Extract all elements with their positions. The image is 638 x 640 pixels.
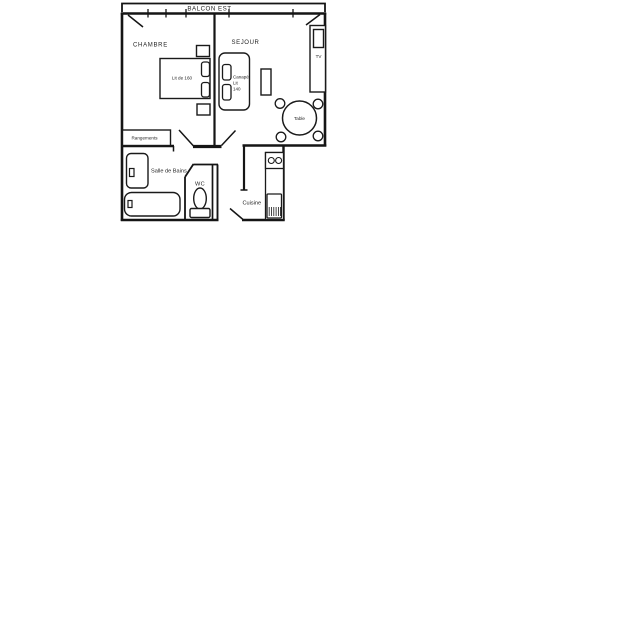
furniture (123, 26, 326, 220)
entry-door-swing (230, 209, 243, 220)
dining-chair-3 (276, 132, 286, 142)
side-table (261, 69, 271, 95)
toilet-bowl (194, 188, 207, 209)
nightstand-top (197, 46, 210, 57)
tv-screen (314, 30, 324, 48)
chambre-label: CHAMBRE (133, 43, 168, 49)
sofa-label-line1: Canapé (233, 75, 249, 80)
sofa-cushion-bottom (223, 85, 232, 101)
chambre-door-swing (179, 130, 194, 146)
chambre-balcony-door-swing (128, 15, 143, 27)
bathtub (125, 193, 181, 217)
tv-label: TV (316, 54, 323, 59)
floor-plan-drawing: BALCON EST CHAMBRE SEJOUR Lit de 160 Can… (0, 0, 638, 640)
dining-chair-4 (313, 131, 323, 141)
sejour-balcony-door-swing (306, 15, 320, 26)
floor-plan-canvas: BALCON EST CHAMBRE SEJOUR Lit de 160 Can… (0, 0, 638, 640)
sejour-door-swing (222, 131, 236, 146)
sofa-label-line2: Lit (233, 81, 239, 86)
bathroom-label: Salle de Bains (151, 169, 187, 175)
sofa-label-line3: 140 (233, 87, 241, 92)
bed-pillow-bottom (202, 83, 210, 98)
toilet-base (190, 209, 210, 218)
bathtub-tap (128, 201, 132, 208)
wc-label: WC (195, 182, 205, 188)
balcony-label: BALCON EST (187, 6, 231, 13)
bed-label: Lit de 160 (172, 76, 193, 81)
kitchen-label: Cuisine (243, 201, 262, 207)
dining-chair-1 (275, 99, 285, 109)
table-label: Table (294, 116, 305, 121)
sejour-label: SEJOUR (232, 40, 260, 46)
storage-label: Rangements (131, 136, 158, 141)
bed-pillow-top (202, 62, 210, 77)
shower-tap (130, 169, 135, 177)
sofa-cushion-top (223, 65, 232, 81)
dining-chair-2 (313, 99, 323, 109)
nightstand-bottom (197, 104, 210, 115)
